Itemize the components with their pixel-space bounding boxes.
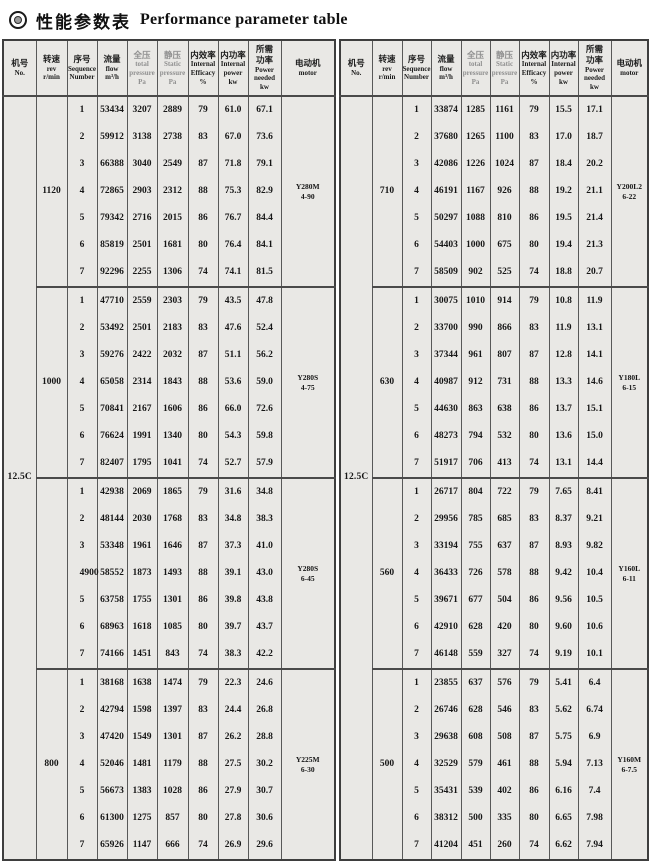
cell-eff: 88 (188, 369, 218, 396)
cell-ipow: 27.5 (218, 751, 248, 778)
cell-static: 675 (490, 232, 519, 259)
cell-flow: 47710 (97, 287, 127, 315)
cell-flow: 39671 (431, 587, 461, 614)
header-line: rev (37, 65, 67, 74)
cell-need: 41.0 (248, 533, 281, 560)
cell-seq: 2 (402, 315, 431, 342)
cell-ipow: 7.65 (549, 478, 578, 506)
cell-need: 82.9 (248, 178, 281, 205)
cell-seq: 2 (402, 697, 431, 724)
cell-ipow: 27.9 (218, 778, 248, 805)
header-line: 内效率 (520, 50, 549, 61)
header-line: Pa (158, 78, 188, 87)
header-line: Internal (520, 60, 549, 69)
cell-eff: 88 (519, 178, 549, 205)
cell-static: 638 (490, 396, 519, 423)
cell-ipow: 15.5 (549, 96, 578, 124)
fan-no-cell: 12.5C (3, 96, 36, 860)
col-header-motor: 电动机motor (281, 40, 335, 96)
cell-seq: 1 (402, 478, 431, 506)
cell-need: 13.1 (578, 315, 611, 342)
header-line: needed (249, 74, 281, 83)
cell-need: 9.82 (578, 533, 611, 560)
cell-total: 863 (461, 396, 490, 423)
header-line: Power (579, 66, 611, 75)
cell-flow: 37680 (431, 124, 461, 151)
cell-eff: 86 (188, 587, 218, 614)
header-line: 全压 (128, 50, 157, 61)
header-line: 电动机 (612, 58, 648, 69)
cell-total: 961 (461, 342, 490, 369)
cell-ipow: 8.93 (549, 533, 578, 560)
performance-table-left: 机号No.转速revr/min序号SequenceNumber流量flowm³/… (2, 39, 336, 861)
cell-ipow: 6.16 (549, 778, 578, 805)
cell-seq: 1 (67, 287, 97, 315)
col-header-seq: 序号SequenceNumber (402, 40, 431, 96)
motor-cell: Y200L26-22 (611, 96, 648, 287)
header-line: m³/h (432, 73, 461, 82)
cell-need: 47.8 (248, 287, 281, 315)
cell-static: 578 (490, 560, 519, 587)
cell-total: 628 (461, 697, 490, 724)
cell-ipow: 27.8 (218, 805, 248, 832)
motor-model: Y180L (612, 373, 648, 383)
header-line: 功率 (249, 55, 281, 66)
header-line: motor (282, 69, 335, 78)
col-header-seq: 序号SequenceNumber (67, 40, 97, 96)
cell-flow: 42794 (97, 697, 127, 724)
cell-static: 2183 (157, 315, 188, 342)
header-line: 所需 (249, 44, 281, 55)
cell-static: 1301 (157, 587, 188, 614)
header-line: kw (249, 83, 281, 92)
cell-seq: 7 (402, 641, 431, 669)
cell-flow: 44630 (431, 396, 461, 423)
cell-eff: 83 (188, 315, 218, 342)
cell-total: 2501 (127, 232, 157, 259)
cell-need: 7.98 (578, 805, 611, 832)
cell-flow: 33194 (431, 533, 461, 560)
cell-eff: 87 (519, 533, 549, 560)
cell-eff: 74 (188, 259, 218, 287)
cell-need: 72.6 (248, 396, 281, 423)
header-line: 内功率 (219, 50, 248, 61)
rev-value: 710 (380, 187, 394, 197)
cell-total: 1000 (461, 232, 490, 259)
motor-spec: 4-90 (282, 192, 335, 202)
cell-need: 30.2 (248, 751, 281, 778)
cell-seq: 2 (402, 506, 431, 533)
cell-flow: 33700 (431, 315, 461, 342)
cell-ipow: 34.8 (218, 506, 248, 533)
rev-value: 560 (380, 569, 394, 579)
cell-flow: 42910 (431, 614, 461, 641)
cell-eff: 86 (188, 396, 218, 423)
cell-seq: 5 (402, 396, 431, 423)
cell-total: 2501 (127, 315, 157, 342)
cell-ipow: 37.3 (218, 533, 248, 560)
cell-need: 10.5 (578, 587, 611, 614)
cell-ipow: 74.1 (218, 259, 248, 287)
cell-total: 3207 (127, 96, 157, 124)
cell-eff: 88 (188, 751, 218, 778)
cell-eff: 87 (188, 151, 218, 178)
cell-ipow: 76.4 (218, 232, 248, 259)
cell-flow: 38168 (97, 669, 127, 697)
cell-static: 2015 (157, 205, 188, 232)
cell-ipow: 18.8 (549, 259, 578, 287)
cell-total: 500 (461, 805, 490, 832)
table-row: 800138168163814747922.324.6Y225M6-30 (3, 669, 335, 697)
col-header-rev: 转速revr/min (372, 40, 402, 96)
cell-seq: 6 (67, 614, 97, 641)
cell-static: 327 (490, 641, 519, 669)
motor-cell: Y225M6-30 (281, 669, 335, 860)
table-slot-left: 机号No.转速revr/min序号SequenceNumber流量flowm³/… (2, 39, 336, 861)
header-line: pressure (462, 69, 490, 78)
cell-need: 14.1 (578, 342, 611, 369)
cell-static: 2738 (157, 124, 188, 151)
cell-eff: 80 (519, 423, 549, 450)
cell-ipow: 75.3 (218, 178, 248, 205)
rev-cell: 500 (372, 669, 402, 860)
cell-static: 857 (157, 805, 188, 832)
cell-total: 3040 (127, 151, 157, 178)
motor-model: Y280S (282, 564, 335, 574)
motor-cell: Y280S6-45 (281, 478, 335, 669)
cell-flow: 54403 (431, 232, 461, 259)
cell-static: 2889 (157, 96, 188, 124)
header-line: flow (432, 65, 461, 74)
cell-seq: 2 (67, 315, 97, 342)
cell-eff: 80 (188, 232, 218, 259)
cell-ipow: 76.7 (218, 205, 248, 232)
cell-flow: 59912 (97, 124, 127, 151)
cell-seq: 3 (67, 724, 97, 751)
cell-seq: 1 (67, 96, 97, 124)
header-line: total (128, 60, 157, 69)
cell-eff: 86 (188, 778, 218, 805)
cell-ipow: 24.4 (218, 697, 248, 724)
cell-need: 73.6 (248, 124, 281, 151)
cell-need: 43.0 (248, 560, 281, 587)
cell-static: 1768 (157, 506, 188, 533)
header-line: 全压 (462, 50, 490, 61)
cell-ipow: 51.1 (218, 342, 248, 369)
cell-need: 18.7 (578, 124, 611, 151)
cell-eff: 79 (188, 96, 218, 124)
cell-flow: 70841 (97, 396, 127, 423)
fan-no-cell: 12.5C (340, 96, 372, 860)
cell-need: 42.2 (248, 641, 281, 669)
rev-cell: 900 (36, 478, 67, 669)
motor-model: Y225M (282, 755, 335, 765)
cell-flow: 48273 (431, 423, 461, 450)
cell-eff: 74 (188, 641, 218, 669)
cell-eff: 74 (519, 450, 549, 478)
cell-static: 1161 (490, 96, 519, 124)
cell-flow: 37344 (431, 342, 461, 369)
cell-seq: 4 (67, 178, 97, 205)
cell-need: 11.9 (578, 287, 611, 315)
cell-seq: 1 (67, 669, 97, 697)
header-line: m³/h (98, 73, 127, 82)
cell-ipow: 61.0 (218, 96, 248, 124)
cell-total: 579 (461, 751, 490, 778)
cell-flow: 38312 (431, 805, 461, 832)
header-line: kw (579, 83, 611, 92)
cell-eff: 79 (519, 96, 549, 124)
rev-value: 630 (380, 378, 394, 388)
rev-value: 900 (84, 569, 98, 579)
motor-spec: 6-11 (612, 574, 648, 584)
cell-ipow: 9.60 (549, 614, 578, 641)
cell-ipow: 31.6 (218, 478, 248, 506)
motor-model: Y200L2 (612, 182, 648, 192)
cell-need: 7.13 (578, 751, 611, 778)
motor-cell: Y280M4-90 (281, 96, 335, 287)
cell-ipow: 5.75 (549, 724, 578, 751)
cell-seq: 7 (67, 450, 97, 478)
cell-need: 43.7 (248, 614, 281, 641)
cell-ipow: 17.0 (549, 124, 578, 151)
motor-model: Y160L (612, 564, 648, 574)
cell-eff: 79 (519, 669, 549, 697)
cell-eff: 86 (519, 778, 549, 805)
cell-total: 637 (461, 669, 490, 697)
cell-seq: 6 (402, 232, 431, 259)
cell-flow: 58509 (431, 259, 461, 287)
cell-total: 794 (461, 423, 490, 450)
header-line: 机号 (341, 58, 372, 69)
header-line: flow (98, 65, 127, 74)
cell-eff: 80 (188, 423, 218, 450)
cell-eff: 83 (188, 697, 218, 724)
cell-seq: 5 (67, 587, 97, 614)
cell-flow: 32529 (431, 751, 461, 778)
header-line: 所需 (579, 44, 611, 55)
table-slot-right: 机号No.转速revr/min序号SequenceNumber流量flowm³/… (339, 39, 649, 861)
header-line: pressure (491, 69, 519, 78)
cell-total: 1755 (127, 587, 157, 614)
rev-cell: 560 (372, 478, 402, 669)
cell-total: 1618 (127, 614, 157, 641)
cell-need: 56.2 (248, 342, 281, 369)
cell-total: 2030 (127, 506, 157, 533)
cell-ipow: 5.62 (549, 697, 578, 724)
cell-total: 559 (461, 641, 490, 669)
cell-static: 335 (490, 805, 519, 832)
cell-total: 1549 (127, 724, 157, 751)
page-title: 性能参数表 Performance parameter table (0, 0, 650, 39)
cell-eff: 83 (519, 124, 549, 151)
cell-need: 30.6 (248, 805, 281, 832)
col-header-internal-power: 内功率Internalpowerkw (549, 40, 578, 96)
rev-cell: 1000 (36, 287, 67, 478)
header-line: power (219, 69, 248, 78)
col-header-no: 机号No. (340, 40, 372, 96)
cell-static: 926 (490, 178, 519, 205)
cell-seq: 3 (402, 724, 431, 751)
cell-ipow: 13.1 (549, 450, 578, 478)
cell-eff: 79 (519, 287, 549, 315)
cell-ipow: 13.6 (549, 423, 578, 450)
header-line: No. (4, 69, 36, 78)
cell-ipow: 6.65 (549, 805, 578, 832)
cell-seq: 6 (67, 805, 97, 832)
cell-static: 1306 (157, 259, 188, 287)
motor-model: Y160M (612, 755, 648, 765)
header-line: kw (550, 78, 578, 87)
cell-total: 677 (461, 587, 490, 614)
cell-flow: 46148 (431, 641, 461, 669)
cell-ipow: 9.56 (549, 587, 578, 614)
cell-need: 34.8 (248, 478, 281, 506)
col-header-no: 机号No. (3, 40, 36, 96)
cell-seq: 5 (402, 205, 431, 232)
document-page: 性能参数表 Performance parameter table 机号No.转… (0, 0, 650, 856)
cell-ipow: 38.3 (218, 641, 248, 669)
cell-need: 6.74 (578, 697, 611, 724)
cell-ipow: 22.3 (218, 669, 248, 697)
cell-static: 2312 (157, 178, 188, 205)
cell-ipow: 39.8 (218, 587, 248, 614)
col-header-efficiency: 内效率InternalEfficacy% (188, 40, 218, 96)
cell-seq: 4 (402, 751, 431, 778)
cell-static: 1340 (157, 423, 188, 450)
cell-flow: 72865 (97, 178, 127, 205)
cell-eff: 80 (188, 614, 218, 641)
cell-need: 9.21 (578, 506, 611, 533)
cell-seq: 6 (67, 232, 97, 259)
motor-cell: Y160L6-11 (611, 478, 648, 669)
table-row: 1000147710255923037943.547.8Y280S4-75 (3, 287, 335, 315)
cell-eff: 74 (519, 259, 549, 287)
cell-total: 912 (461, 369, 490, 396)
cell-seq: 6 (402, 423, 431, 450)
cell-ipow: 9.42 (549, 560, 578, 587)
cell-eff: 86 (519, 587, 549, 614)
cell-ipow: 9.19 (549, 641, 578, 669)
cell-total: 1961 (127, 533, 157, 560)
header-line: Pa (128, 78, 157, 87)
cell-total: 1285 (461, 96, 490, 124)
col-header-efficiency: 内效率InternalEfficacy% (519, 40, 549, 96)
cell-ipow: 19.4 (549, 232, 578, 259)
table-row: 12.5C710133874128511617915.517.1Y200L26-… (340, 96, 648, 124)
cell-static: 508 (490, 724, 519, 751)
header-line: 序号 (403, 54, 431, 65)
cell-static: 413 (490, 450, 519, 478)
cell-total: 990 (461, 315, 490, 342)
cell-flow: 56673 (97, 778, 127, 805)
cell-static: 461 (490, 751, 519, 778)
header-line: Static (158, 60, 188, 69)
cell-total: 706 (461, 450, 490, 478)
cell-flow: 23855 (431, 669, 461, 697)
cell-ipow: 47.6 (218, 315, 248, 342)
cell-seq: 6 (402, 805, 431, 832)
cell-seq: 3 (67, 533, 97, 560)
cell-total: 726 (461, 560, 490, 587)
cell-ipow: 39.1 (218, 560, 248, 587)
cell-static: 1179 (157, 751, 188, 778)
header-line: 机号 (4, 58, 36, 69)
rev-value: 1000 (42, 378, 61, 388)
cell-total: 1451 (127, 641, 157, 669)
cell-eff: 88 (519, 751, 549, 778)
table-row: 63013007510109147910.811.9Y180L6-15 (340, 287, 648, 315)
cell-ipow: 5.41 (549, 669, 578, 697)
cell-ipow: 71.8 (218, 151, 248, 178)
header-line: No. (341, 69, 372, 78)
cell-total: 2422 (127, 342, 157, 369)
cell-flow: 47420 (97, 724, 127, 751)
cell-ipow: 66.0 (218, 396, 248, 423)
cell-flow: 59276 (97, 342, 127, 369)
cell-ipow: 11.9 (549, 315, 578, 342)
cell-static: 1865 (157, 478, 188, 506)
page-title-chinese: 性能参数表 (36, 8, 131, 33)
header-line: kw (219, 78, 248, 87)
performance-table-right: 机号No.转速revr/min序号SequenceNumber流量flowm³/… (339, 39, 649, 861)
cell-static: 810 (490, 205, 519, 232)
cell-total: 804 (461, 478, 490, 506)
cell-seq: 3 (67, 342, 97, 369)
page-title-english: Performance parameter table (140, 11, 348, 29)
header-line: 转速 (373, 54, 402, 65)
header-line: pressure (158, 69, 188, 78)
header-line: 电动机 (282, 58, 335, 69)
cell-need: 81.5 (248, 259, 281, 287)
cell-need: 43.8 (248, 587, 281, 614)
header-line: Efficacy (520, 69, 549, 78)
cell-eff: 80 (519, 805, 549, 832)
cell-seq: 1 (402, 669, 431, 697)
header-line: 流量 (432, 54, 461, 65)
header-line: % (520, 78, 549, 87)
cell-static: 866 (490, 315, 519, 342)
cell-total: 902 (461, 259, 490, 287)
header-line: Power (249, 66, 281, 75)
cell-eff: 87 (519, 151, 549, 178)
cell-total: 1265 (461, 124, 490, 151)
col-header-static-pressure: 静压StaticpressurePa (157, 40, 188, 96)
cell-need: 10.1 (578, 641, 611, 669)
cell-need: 67.1 (248, 96, 281, 124)
cell-flow: 63758 (97, 587, 127, 614)
cell-need: 20.7 (578, 259, 611, 287)
cell-eff: 87 (519, 342, 549, 369)
cell-flow: 50297 (431, 205, 461, 232)
cell-eff: 87 (188, 724, 218, 751)
cell-ipow: 43.5 (218, 287, 248, 315)
cell-need: 52.4 (248, 315, 281, 342)
cell-ipow: 19.2 (549, 178, 578, 205)
cell-ipow: 12.8 (549, 342, 578, 369)
cell-flow: 92296 (97, 259, 127, 287)
header-line: Sequence (403, 65, 431, 74)
cell-total: 2716 (127, 205, 157, 232)
cell-need: 59.0 (248, 369, 281, 396)
cell-flow: 68963 (97, 614, 127, 641)
cell-total: 1481 (127, 751, 157, 778)
cell-static: 685 (490, 506, 519, 533)
cell-seq: 7 (67, 641, 97, 669)
cell-total: 1795 (127, 450, 157, 478)
header-line: Number (68, 73, 97, 82)
cell-total: 2559 (127, 287, 157, 315)
